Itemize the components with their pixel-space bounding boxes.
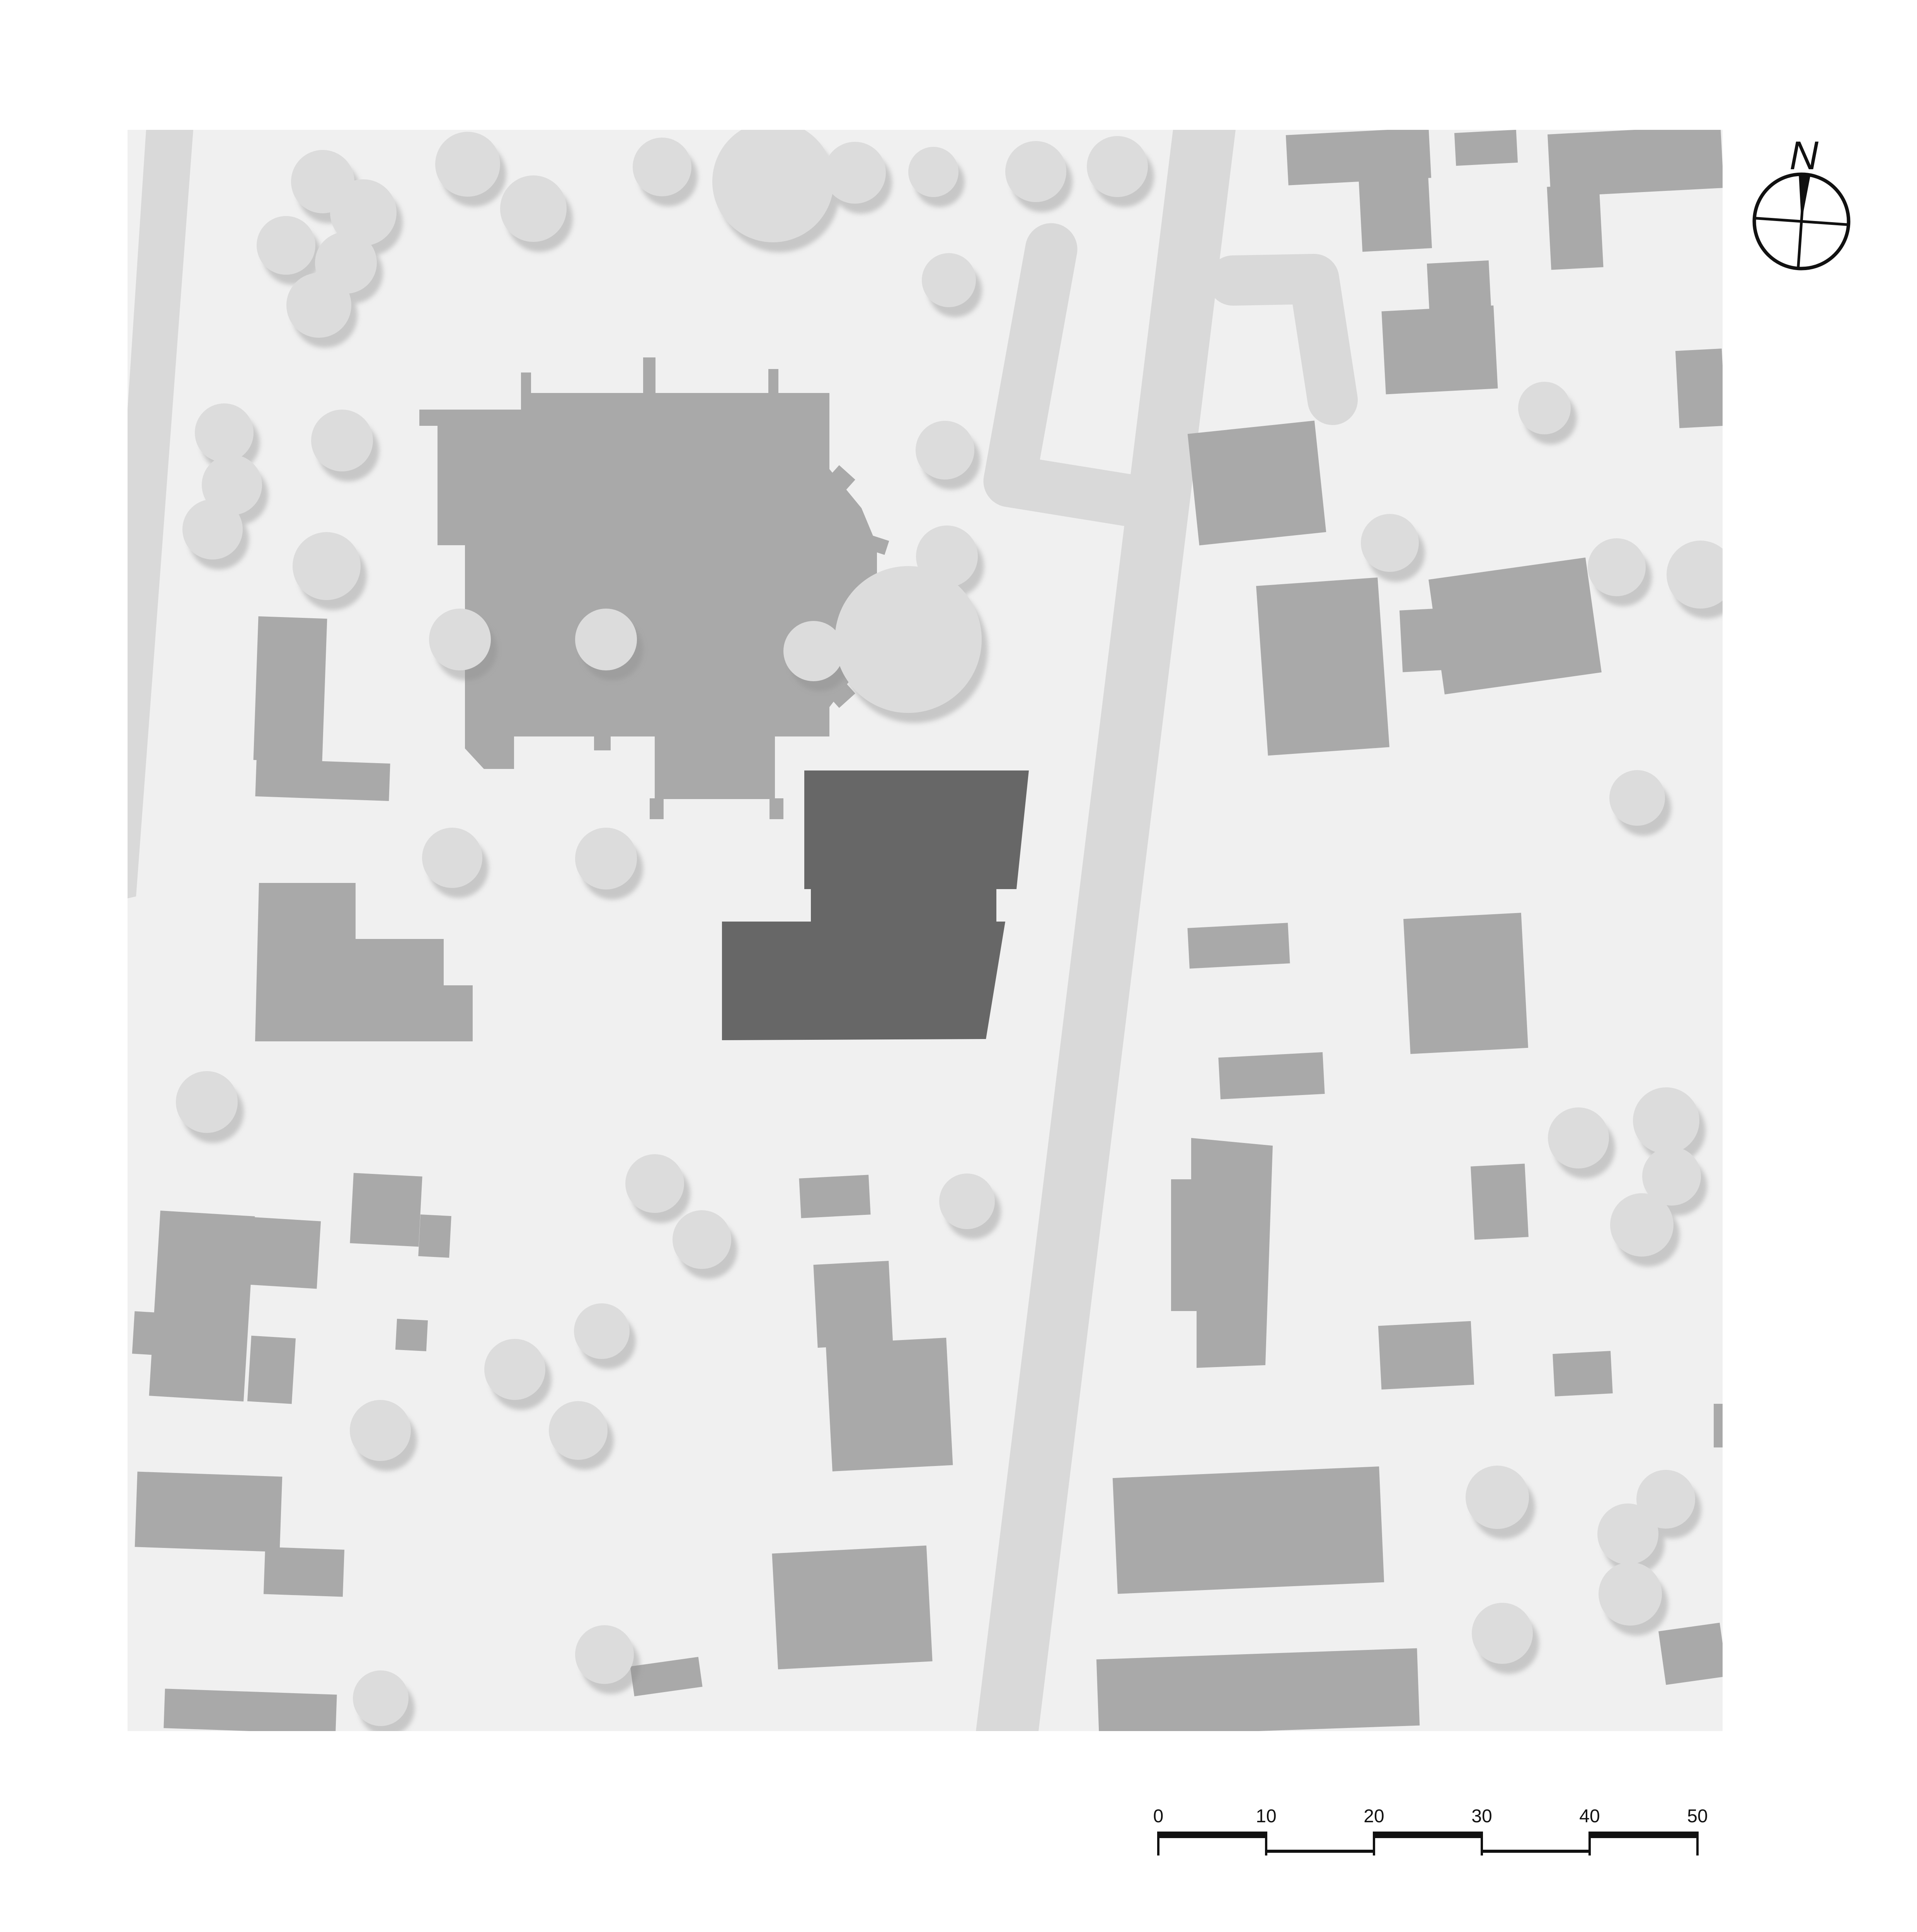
church-buttress: [768, 369, 778, 394]
building-part: [1256, 578, 1389, 756]
building: [1428, 558, 1602, 694]
building-part: [814, 1261, 893, 1348]
building: [1553, 1351, 1613, 1396]
building-part: [1096, 1648, 1420, 1737]
building-part: [149, 1211, 255, 1401]
church-buttress: [643, 357, 655, 394]
tree-icon: [1466, 1466, 1529, 1529]
building: [1454, 130, 1518, 166]
building-part: [772, 1546, 932, 1670]
building: [1658, 1623, 1727, 1685]
building-part: [255, 759, 390, 801]
building: [395, 1319, 428, 1351]
site-plan-page: N01020304050: [0, 0, 1917, 1932]
building: [772, 1546, 932, 1670]
tree-icon: [1609, 770, 1665, 826]
tree-icon: [1633, 1087, 1699, 1154]
tree-icon: [1361, 514, 1419, 572]
tree-icon: [908, 147, 958, 197]
building-part: [799, 1175, 870, 1218]
building-part: [247, 1336, 296, 1404]
building-part: [1403, 913, 1528, 1054]
tree-icon: [575, 828, 637, 889]
building-part: [1428, 558, 1602, 694]
tree-icon: [1087, 136, 1148, 197]
tree-icon: [1518, 382, 1571, 434]
church-buttress: [650, 798, 664, 819]
building-part: [1187, 923, 1290, 968]
tree-icon: [575, 1625, 634, 1684]
tree-icon: [1472, 1603, 1533, 1664]
building-part: [1378, 1321, 1474, 1389]
north-label: N: [1789, 133, 1819, 178]
building: [1187, 923, 1290, 968]
building-part: [1471, 1163, 1529, 1240]
building: [1188, 421, 1326, 546]
building-part: [1454, 130, 1518, 166]
tree-icon: [939, 1173, 995, 1229]
tree-icon: [484, 1339, 545, 1400]
building: [799, 1175, 870, 1218]
building: [163, 1689, 337, 1734]
building-part: [395, 1319, 428, 1351]
scale-label: 50: [1687, 1806, 1708, 1827]
tree-icon: [311, 410, 373, 471]
tree-icon: [350, 1400, 411, 1461]
tree-icon: [422, 828, 482, 888]
church-buttress: [594, 736, 611, 750]
tree-icon: [286, 273, 351, 338]
building-part: [418, 1214, 451, 1258]
building-part: [1218, 1052, 1325, 1099]
tree-icon: [633, 138, 691, 196]
tree-icon: [574, 1303, 630, 1359]
building-part: [1675, 349, 1726, 428]
scale-label: 30: [1471, 1806, 1492, 1827]
building: [1471, 1163, 1529, 1240]
building-part: [1658, 1623, 1727, 1685]
tree-icon: [429, 609, 491, 670]
building: [1675, 349, 1726, 428]
tree-icon: [672, 1210, 731, 1269]
building-part: [826, 1338, 953, 1471]
scale-tick: [1696, 1832, 1699, 1855]
tree-icon: [257, 216, 315, 275]
building: [1256, 578, 1389, 756]
tree-icon: [182, 499, 243, 560]
tree-icon: [1548, 1107, 1609, 1168]
tree-icon: [1597, 1503, 1658, 1565]
building-part: [1714, 1404, 1723, 1447]
tree-icon: [1588, 538, 1646, 596]
scale-label: 20: [1364, 1806, 1384, 1827]
building: [1403, 913, 1528, 1054]
building-part: [254, 616, 327, 762]
scale-segment-thin: [1266, 1850, 1374, 1853]
tree-icon: [712, 121, 834, 242]
building: [1096, 1648, 1420, 1737]
tree-icon: [835, 566, 982, 713]
tree-icon: [575, 609, 637, 670]
building-part: [1113, 1466, 1384, 1594]
scale-segment-filled: [1158, 1832, 1266, 1838]
site-plan-canvas: N01020304050: [0, 0, 1917, 1932]
tree-icon: [922, 253, 976, 307]
building-part: [1382, 306, 1498, 395]
tree-icon: [500, 175, 567, 242]
building-part: [1547, 184, 1603, 270]
church-buttress: [521, 372, 531, 411]
building: [1218, 1052, 1325, 1099]
tree-icon: [1005, 141, 1066, 202]
tree-icon: [176, 1071, 238, 1133]
building-part: [1427, 260, 1491, 312]
tree-icon: [549, 1401, 608, 1460]
building-part: [1188, 421, 1326, 546]
tree-icon: [195, 403, 254, 462]
tree-icon: [293, 532, 361, 600]
building-part: [132, 1311, 156, 1355]
building: [1714, 1404, 1723, 1447]
building-part: [1553, 1351, 1613, 1396]
church-buttress: [419, 410, 439, 426]
scale-label: 10: [1256, 1806, 1276, 1827]
tree-icon: [1610, 1193, 1674, 1257]
scale-segment-filled: [1590, 1832, 1697, 1838]
tree-icon: [353, 1670, 409, 1726]
tree-icon: [783, 621, 844, 681]
building: [1378, 1321, 1474, 1389]
tree-icon: [916, 421, 974, 480]
building-part: [1359, 173, 1432, 252]
building-part: [135, 1472, 283, 1552]
building-part: [247, 1217, 321, 1289]
scale-label: 40: [1579, 1806, 1600, 1827]
tree-icon: [435, 132, 500, 197]
building: [1113, 1466, 1384, 1594]
church-buttress: [770, 798, 783, 819]
tree-icon: [1599, 1562, 1662, 1626]
tree-icon: [824, 142, 886, 204]
tree-icon: [625, 1154, 684, 1213]
scale-label: 0: [1153, 1806, 1164, 1827]
building-part: [163, 1689, 337, 1734]
building-part: [264, 1547, 344, 1597]
scale-segment-thin: [1482, 1850, 1590, 1853]
scale-segment-filled: [1374, 1832, 1482, 1838]
building-part: [350, 1173, 422, 1247]
